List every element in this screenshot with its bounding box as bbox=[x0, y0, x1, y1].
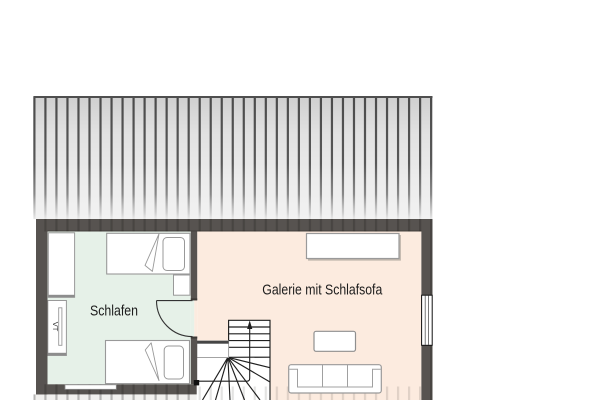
svg-text:VT: VT bbox=[51, 322, 60, 332]
svg-text:Schlafen: Schlafen bbox=[90, 303, 138, 320]
svg-text:Galerie mit Schlafsofa: Galerie mit Schlafsofa bbox=[262, 281, 383, 298]
